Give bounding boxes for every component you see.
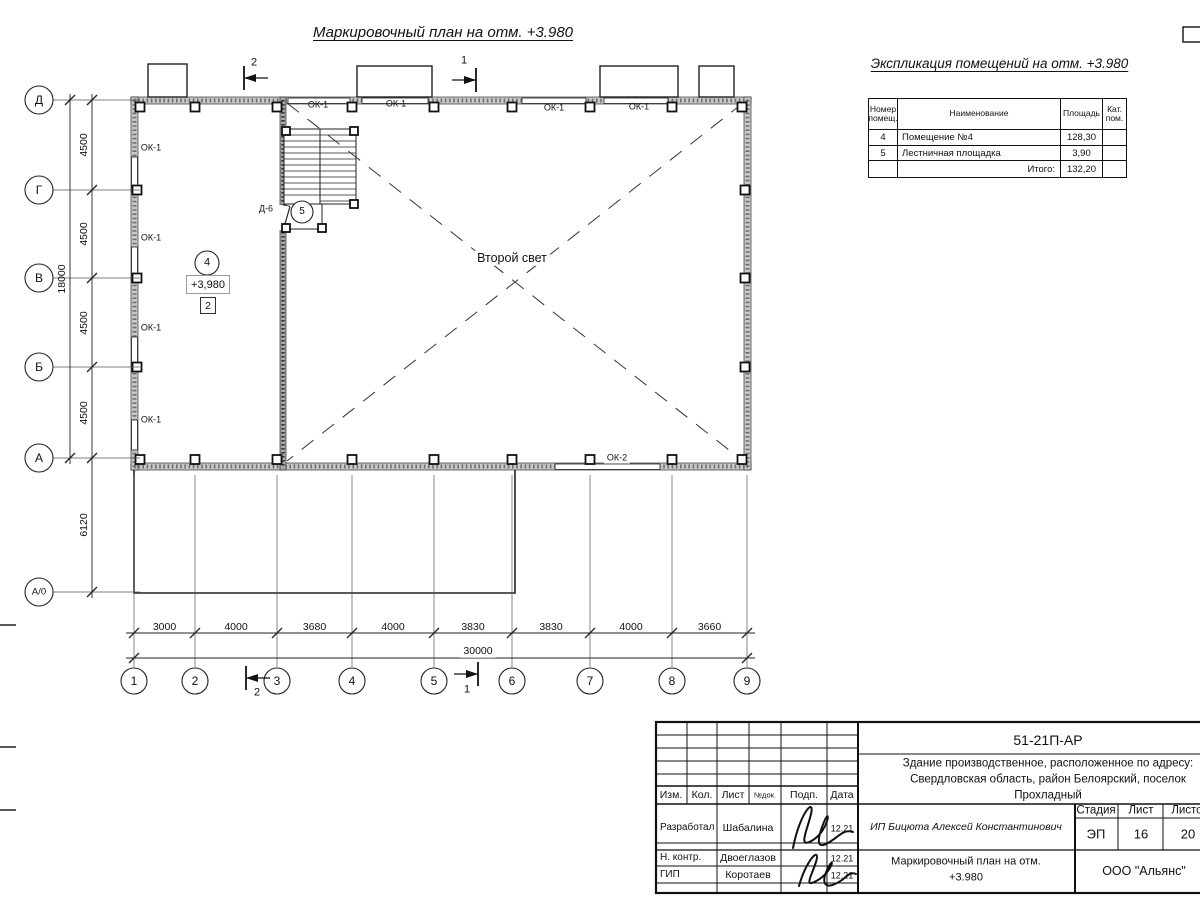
dimension-label-total: 18000 [57,264,68,293]
expl-col-header: Площадь [1061,99,1103,130]
axis-col-label: 5 [431,675,438,687]
stage-header: Стадия [1076,805,1115,817]
section-mark-label: 1 [464,685,470,696]
signer-role: Н. контр. [660,853,701,863]
dimension-label: 4000 [619,621,642,632]
second-light-label: Второй свет [474,251,550,266]
dimension-label: 4500 [79,222,90,245]
axis-row-label: Д [35,94,43,106]
doc-number: 51-21П-АР [1013,733,1082,747]
expl-cell-area: 3,90 [1061,146,1103,161]
axis-col-label: 9 [744,675,751,687]
dimension-label: 3680 [303,621,326,632]
window-label-ok1: ОК-1 [141,234,161,243]
stage-header: Листов [1171,805,1200,817]
axis-row-label: А [35,452,43,464]
window-label-ok1: ОК-1 [141,416,161,425]
expl-cell-num: 4 [869,130,898,146]
project-address-line: Прохладный [1014,790,1082,802]
expl-cell-num: 5 [869,146,898,161]
project-address-line: Свердловская область, район Белоярский, … [910,774,1186,786]
axis-col-label: 6 [509,675,516,687]
axis-col-label: 7 [587,675,594,687]
window-label-ok1: ОК-1 [141,324,161,333]
company-name: ООО "Альянс" [1102,865,1186,878]
axis-row-label: В [35,272,43,284]
expl-total-label: Итого: [898,161,1061,177]
page-title: Маркировочный план на отм. +3.980 [298,24,588,41]
signer-date: 12.21 [831,825,854,834]
section-mark-label: 2 [254,688,260,699]
dimension-label: 4500 [79,311,90,334]
window-label-ok2: ОК-2 [604,453,630,464]
door-label: Д-6 [259,205,273,214]
project-address-line: Здание производственное, расположенное п… [903,758,1193,770]
room-number: 5 [299,207,305,217]
expl-col-header: Кат. пом. [1103,99,1126,130]
dimension-label: 4500 [79,401,90,424]
table-header: Подп. [790,790,818,801]
window-label-ok1: ОК-1 [141,144,161,153]
dimension-label: 4000 [224,621,247,632]
dimension-label: 3000 [153,621,176,632]
stage-header: Лист [1129,805,1154,817]
window-label-ok1: ОК-1 [386,100,406,109]
signer-role: Разработал [660,823,714,833]
expl-cell-area: 128,30 [1061,130,1103,146]
client-name: ИП Бицюта Алексей Константинович [870,822,1062,833]
signer-name: Коротаев [725,869,770,880]
signer-date: 12.21 [831,871,854,880]
elevation-mark: +3,980 [186,275,230,294]
signer-name: Двоеглазов [720,853,776,864]
section-mark-label: 2 [251,58,257,69]
axis-row-label: Б [35,361,43,373]
axis-col-label: 1 [131,675,138,687]
window-label-ok1: ОК-1 [629,103,649,112]
axis-col-label: 8 [669,675,676,687]
signer-name: Шабалина [723,823,774,834]
expl-cell-num [869,161,898,177]
zone-mark: 2 [200,297,216,314]
sheets-total: 20 [1181,828,1195,841]
axis-col-label: 3 [274,675,281,687]
window-label-ok1: ОК-1 [308,101,328,110]
expl-col-header: Номер помещ. [869,99,898,130]
drawing-sheet: Маркировочный план на отм. +3.980 Экспли… [0,0,1200,900]
table-header: №док. [754,791,776,799]
expl-cell-cat [1103,161,1126,177]
signer-role: ГИП [660,870,680,880]
axis-col-label: 4 [349,675,356,687]
dimension-label: 4000 [381,621,404,632]
expl-col-header: Наименование [898,99,1061,130]
explication-title: Экспликация помещений на отм. +3.980 [852,56,1147,71]
expl-cell-name: Лестничная площадка [898,146,1061,161]
stage-value: ЭП [1087,828,1106,841]
axis-row-label: А/0 [32,587,46,597]
dimension-label-total: 30000 [460,645,495,658]
window-label-ok1: ОК-1 [544,104,564,113]
dimension-label: 4500 [79,133,90,156]
expl-cell-name: Помещение №4 [898,130,1061,146]
sheet-title-line: +3.980 [949,873,983,884]
signer-date: 12.21 [831,855,854,864]
dimension-label: 6120 [79,513,90,536]
section-mark-label: 1 [461,56,467,67]
dimension-label: 3830 [461,621,484,632]
axis-col-label: 2 [192,675,199,687]
table-header: Лист [722,790,745,801]
table-header: Кол. [692,790,713,801]
sheet-title-line: Маркировочный план на отм. [891,857,1041,868]
expl-cell-cat [1103,146,1126,161]
explication-table: Номер помещ.НаименованиеПлощадьКат. пом.… [868,98,1127,178]
table-header: Изм. [660,790,683,801]
expl-cell-cat [1103,130,1126,146]
dimension-label: 3660 [698,621,721,632]
axis-row-label: Г [36,184,43,196]
table-header: Дата [830,790,853,801]
expl-total-value: 132,20 [1061,161,1103,177]
dimension-label: 3830 [539,621,562,632]
sheet-number: 16 [1134,828,1148,841]
room-number: 4 [204,258,210,269]
